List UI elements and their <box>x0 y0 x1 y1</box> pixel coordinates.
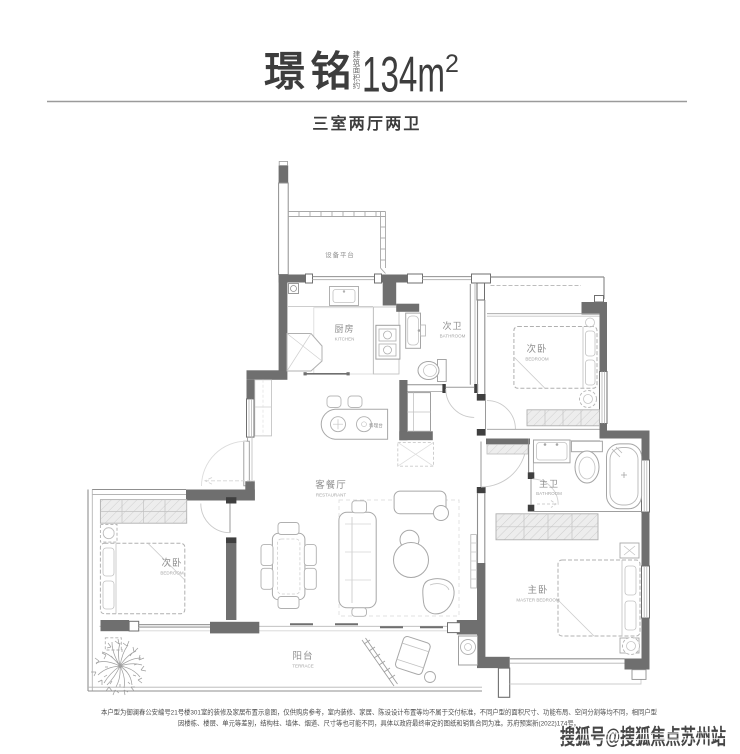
svg-text:KITCHEN: KITCHEN <box>335 337 355 342</box>
svg-text:次卧: 次卧 <box>526 343 547 355</box>
svg-text:主卫: 主卫 <box>539 478 559 489</box>
svg-text:搜狐号@搜狐焦点苏州站: 搜狐号@搜狐焦点苏州站 <box>560 725 726 749</box>
svg-text:次卧: 次卧 <box>161 557 182 569</box>
svg-text:设备平台: 设备平台 <box>325 250 355 259</box>
svg-text:134m: 134m <box>362 47 445 103</box>
svg-text:约: 约 <box>353 81 360 90</box>
svg-text:阳台: 阳台 <box>292 650 313 662</box>
svg-text:主卧: 主卧 <box>527 584 548 596</box>
svg-text:本户型为御澜春公安编号21号楼301室的装修及家居布置示意图: 本户型为御澜春公安编号21号楼301室的装修及家居布置示意图，仅供购房参考，室内… <box>101 708 657 717</box>
svg-text:BATHROOM: BATHROOM <box>440 334 466 339</box>
svg-text:次卫: 次卫 <box>442 320 462 331</box>
svg-text:2: 2 <box>445 50 459 78</box>
svg-text:料理台: 料理台 <box>369 422 383 429</box>
svg-text:厨房: 厨房 <box>334 323 354 334</box>
svg-text:三室两厅两卫: 三室两厅两卫 <box>312 114 421 133</box>
svg-text:TERRACE: TERRACE <box>292 664 314 669</box>
svg-text:BEDROOM: BEDROOM <box>160 571 184 576</box>
svg-text:MASTER BEDROOM: MASTER BEDROOM <box>516 598 560 603</box>
svg-text:客餐厅: 客餐厅 <box>315 479 347 491</box>
svg-text:RESTAURANT: RESTAURANT <box>316 493 346 498</box>
svg-text:因楼栋、楼层、单元等差别，结构柱、墙体、烟道、尺寸等也可能不: 因楼栋、楼层、单元等差别，结构柱、墙体、烟道、尺寸等也可能不同，具体以政府最终审… <box>178 719 580 728</box>
svg-text:璟铭: 璟铭 <box>264 49 357 95</box>
svg-text:BEDROOM: BEDROOM <box>525 357 549 362</box>
svg-text:BATHROOM: BATHROOM <box>536 491 562 496</box>
